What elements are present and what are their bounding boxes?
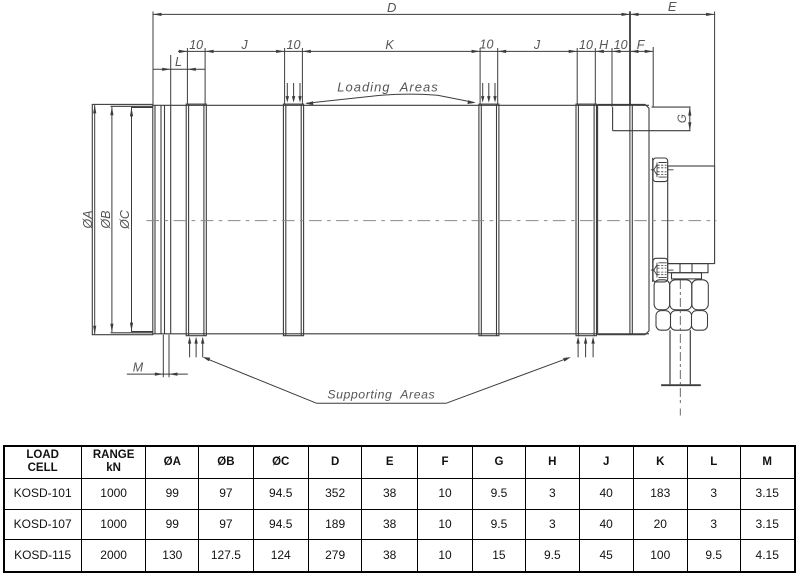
svg-text:D: D [387, 0, 396, 15]
svg-text:J: J [533, 38, 541, 52]
svg-text:L: L [175, 55, 182, 69]
svg-text:10: 10 [614, 38, 628, 52]
svg-text:ØA: ØA [81, 210, 95, 229]
svg-text:G: G [677, 114, 689, 123]
svg-text:E: E [668, 0, 677, 14]
svg-text:ØB: ØB [99, 210, 113, 229]
svg-text:Supporting Areas: Supporting Areas [327, 388, 435, 402]
svg-text:Loading Areas: Loading Areas [337, 80, 438, 95]
svg-text:10: 10 [480, 38, 494, 52]
svg-text:J: J [240, 38, 248, 52]
svg-text:K: K [385, 38, 394, 52]
svg-text:F: F [637, 38, 646, 52]
svg-text:10: 10 [189, 38, 203, 52]
svg-text:10: 10 [579, 38, 593, 52]
svg-text:H: H [599, 38, 609, 52]
svg-text:10: 10 [287, 38, 301, 52]
svg-text:M: M [133, 360, 144, 374]
svg-text:ØC: ØC [118, 209, 132, 230]
